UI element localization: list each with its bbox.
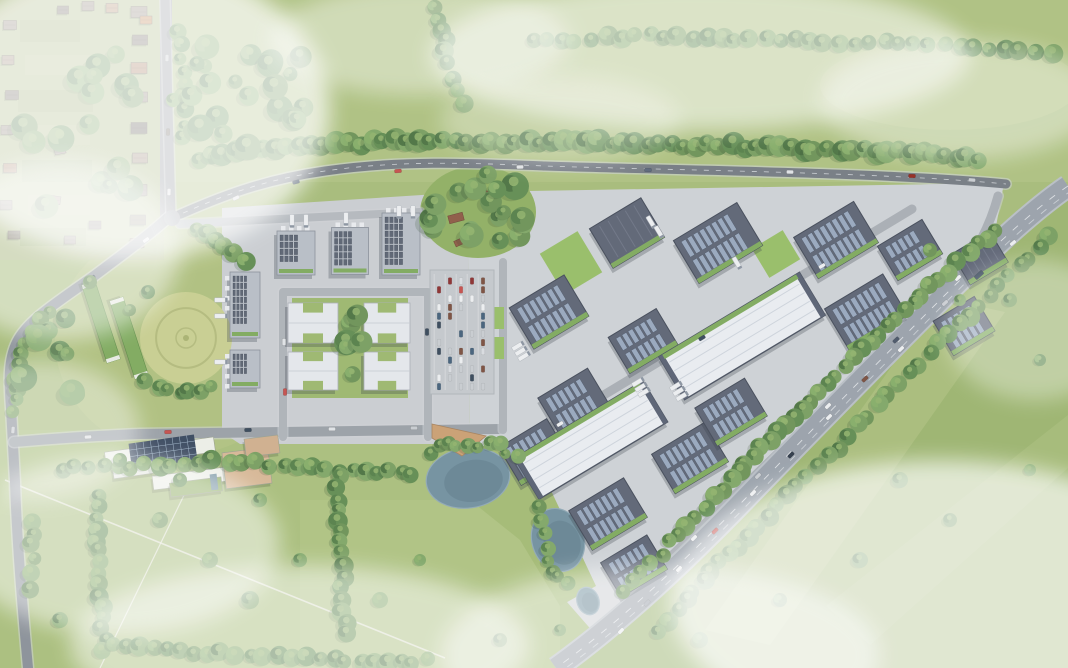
aerial-masterplan-render [0, 0, 1068, 668]
screenshot-root [0, 0, 1068, 668]
atmosphere [0, 0, 1068, 668]
haze-overlay [0, 0, 1068, 668]
